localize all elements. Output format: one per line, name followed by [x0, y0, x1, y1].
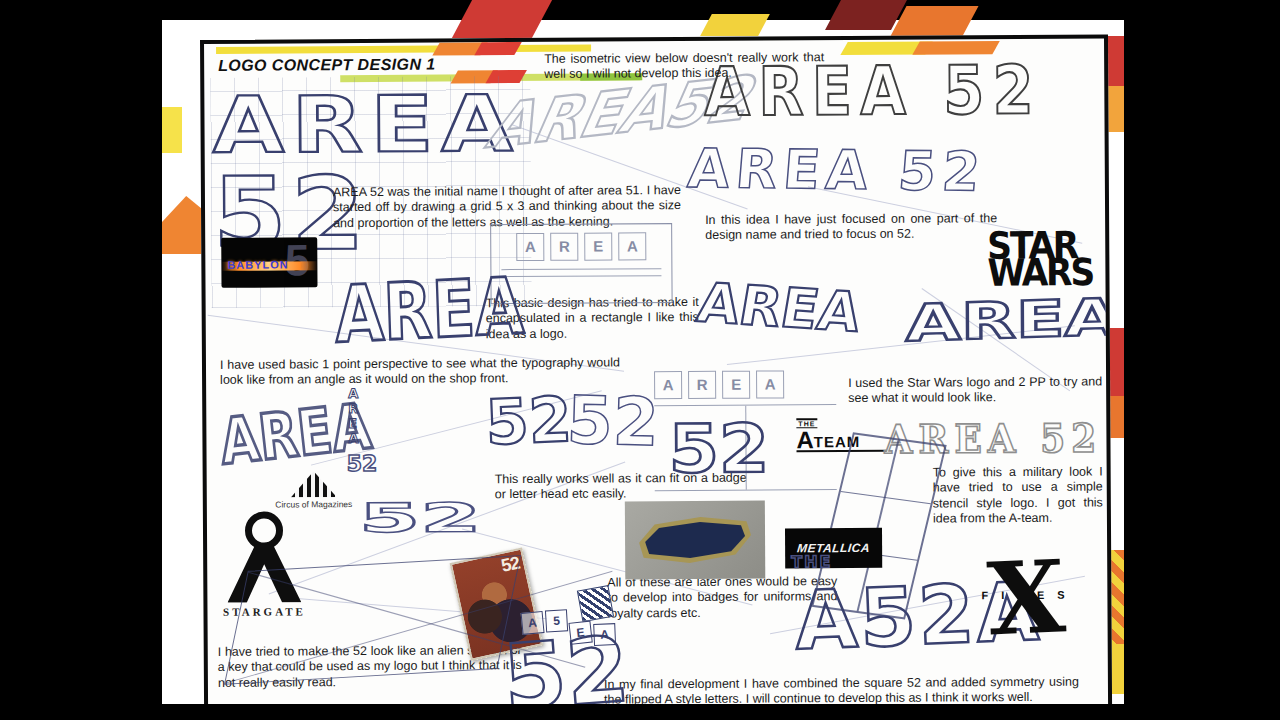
- circus-tent-icon: [291, 471, 337, 497]
- boxed-letter: A: [756, 370, 784, 398]
- design-sheet: LOGO CONCEPT DESIGN 1 AREA 52 AREA52 ARE…: [200, 34, 1112, 720]
- sketch-boxed-area-row: A R E A: [491, 232, 671, 261]
- star-wars-logo: STAR WARS: [987, 231, 1079, 292]
- sketch-wide-52: 52: [359, 494, 482, 541]
- x-files-logo: X FILES: [979, 553, 1100, 650]
- sketch-ink-area-left: AREA: [333, 260, 525, 360]
- boxed-letter: E: [722, 371, 750, 399]
- boxed-letter: A: [516, 233, 544, 261]
- stargate-ring-icon: [245, 512, 283, 550]
- title-stripe-red-chevron: [474, 42, 521, 55]
- babylon5-name: BABYLON: [227, 258, 288, 270]
- sketch-pyramid-area: AREA: [906, 287, 1113, 353]
- circus-logo: Circus of Magazines: [255, 471, 373, 510]
- letterbox-bottom-bar: [0, 704, 1280, 720]
- circus-label: Circus of Magazines: [255, 499, 373, 510]
- boxed-letter: R: [688, 371, 716, 399]
- sketch-block-area52-second: AREA 52: [685, 137, 988, 203]
- decor-top-yellow-shape: [700, 14, 770, 36]
- sketch-the: THE: [791, 552, 832, 571]
- note-isometric: The isometric view below doesn't really …: [544, 50, 824, 82]
- sketch-big-52-a: 52: [484, 383, 573, 459]
- decor-left-yellow-shape: [162, 107, 182, 153]
- badge-photo: [625, 501, 765, 580]
- sketch-perspective-room: [224, 555, 521, 685]
- star-wars-line2: WARS: [987, 257, 1093, 288]
- boxed-letter: R: [550, 233, 578, 261]
- sketch-badge-area-row: A R E A: [654, 370, 836, 399]
- boxed-letter: A: [654, 371, 682, 399]
- note-star-wars: I used the Star Wars logo and 2 PP to tr…: [848, 374, 1102, 406]
- babylon5-logo: 5 BABYLON: [221, 237, 317, 288]
- sketch-big-52-b: 52: [566, 382, 660, 462]
- note-focused-52: In this idea I have just focused on one …: [705, 211, 997, 243]
- video-frame: LOGO CONCEPT DESIGN 1 AREA 52 AREA52 ARE…: [0, 0, 1280, 720]
- note-military: To give this a military look I have trie…: [933, 464, 1103, 526]
- a-team-a: A: [796, 430, 813, 450]
- sketch-hatched-square: [577, 585, 614, 622]
- title-stripe-yellow: [216, 45, 591, 54]
- boxed-letter: A: [618, 232, 646, 260]
- boxed-letter: E: [584, 232, 612, 260]
- sketch-perspective-area-mid: AREA: [693, 271, 866, 344]
- page-title: LOGO CONCEPT DESIGN 1: [218, 56, 435, 75]
- x-files-files: FILES: [981, 589, 1077, 602]
- sketch-badge-52: 52: [668, 410, 769, 489]
